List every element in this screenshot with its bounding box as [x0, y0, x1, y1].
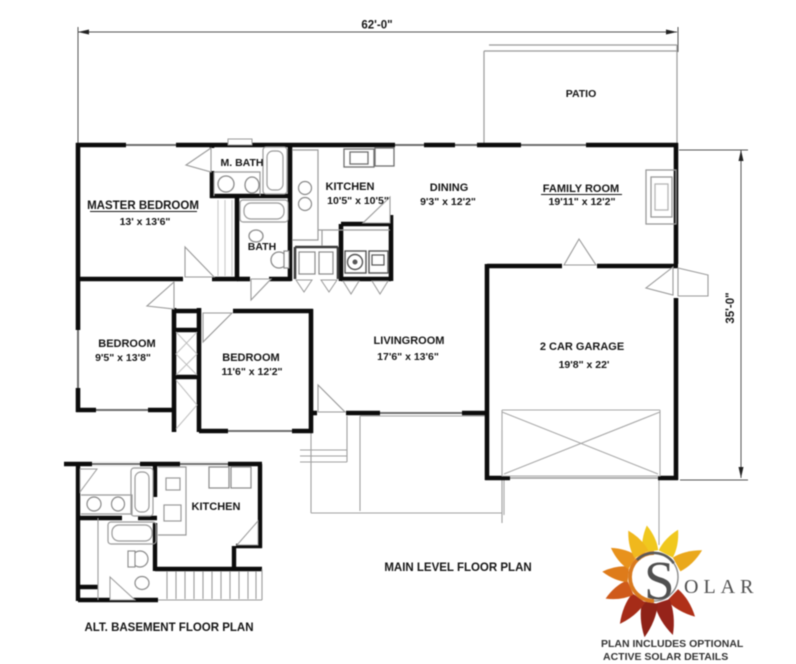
- svg-text:MASTER BEDROOM: MASTER BEDROOM: [87, 200, 199, 212]
- svg-text:13' x 13'6": 13' x 13'6": [120, 216, 171, 228]
- svg-text:FAMILY ROOM: FAMILY ROOM: [543, 183, 619, 195]
- svg-text:KITCHEN: KITCHEN: [192, 501, 241, 513]
- svg-text:11'6" x 12'2": 11'6" x 12'2": [221, 366, 282, 378]
- svg-text:S: S: [644, 550, 675, 611]
- svg-text:35'-0": 35'-0": [725, 292, 737, 323]
- svg-text:2 CAR GARAGE: 2 CAR GARAGE: [540, 341, 624, 353]
- svg-text:17'6" x 13'6": 17'6" x 13'6": [377, 351, 439, 363]
- svg-text:PLAN INCLUDES OPTIONAL: PLAN INCLUDES OPTIONAL: [601, 638, 744, 650]
- svg-text:BEDROOM: BEDROOM: [222, 352, 279, 364]
- svg-text:19'11" x 12'2": 19'11" x 12'2": [549, 196, 616, 208]
- svg-text:PATIO: PATIO: [566, 88, 597, 100]
- svg-text:9'3" x 12'2": 9'3" x 12'2": [420, 196, 476, 208]
- svg-text:OLAR: OLAR: [684, 576, 758, 598]
- svg-text:ACTIVE SOLAR DETAILS: ACTIVE SOLAR DETAILS: [603, 651, 728, 663]
- svg-text:M. BATH: M. BATH: [221, 157, 264, 169]
- svg-text:ALT. BASEMENT FLOOR PLAN: ALT. BASEMENT FLOOR PLAN: [84, 622, 253, 634]
- svg-text:19'8" x 22': 19'8" x 22': [559, 359, 610, 371]
- svg-text:MAIN LEVEL FLOOR PLAN: MAIN LEVEL FLOOR PLAN: [384, 562, 531, 574]
- svg-text:BEDROOM: BEDROOM: [98, 338, 155, 350]
- svg-text:BATH: BATH: [248, 241, 276, 253]
- svg-text:DINING: DINING: [430, 182, 469, 194]
- svg-text:10'5" x 10'5": 10'5" x 10'5": [327, 195, 389, 207]
- svg-text:62'-0": 62'-0": [361, 20, 392, 32]
- svg-text:LIVINGROOM: LIVINGROOM: [374, 335, 445, 347]
- svg-text:9'5" x 13'8": 9'5" x 13'8": [95, 352, 151, 364]
- svg-text:KITCHEN: KITCHEN: [326, 181, 375, 193]
